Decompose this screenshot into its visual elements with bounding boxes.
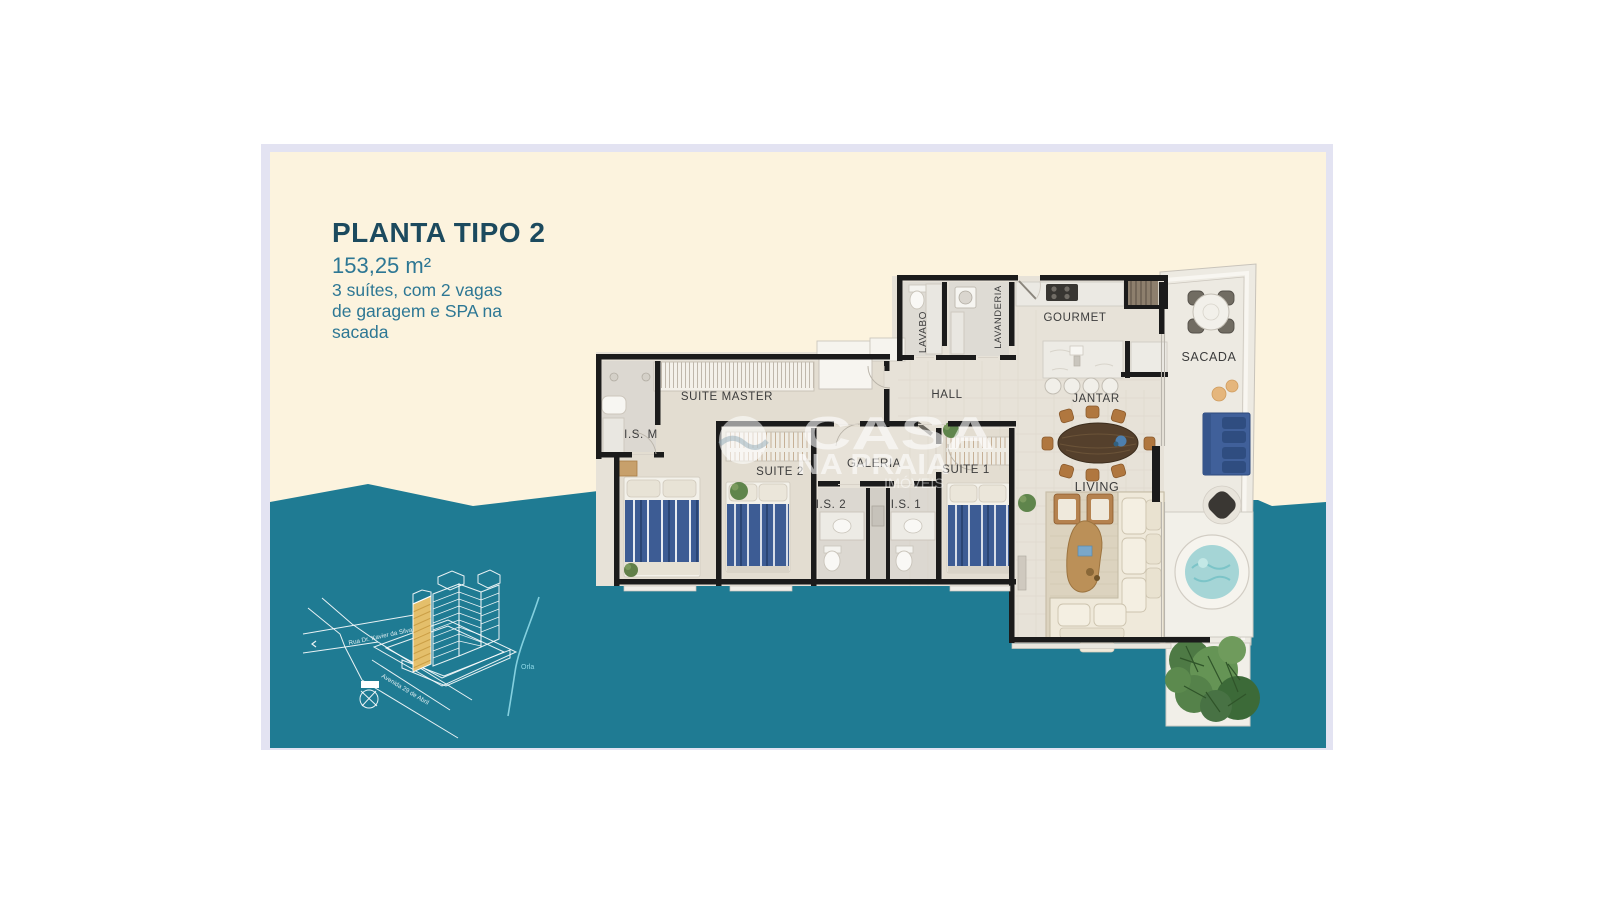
svg-text:3 suítes, com 2 vagas: 3 suítes, com 2 vagas [332,280,502,300]
svg-text:IMÓVEIS: IMÓVEIS [884,475,944,491]
svg-text:SACADA: SACADA [1181,350,1236,364]
svg-text:HALL: HALL [931,389,962,401]
svg-text:de garagem e SPA na: de garagem e SPA na [332,301,502,321]
svg-text:SUITE 1: SUITE 1 [942,464,990,476]
svg-text:Orla: Orla [521,664,534,671]
svg-text:sacada: sacada [332,322,389,342]
svg-text:GOURMET: GOURMET [1044,312,1107,324]
svg-text:LAVABO: LAVABO [918,311,929,353]
svg-text:LIVING: LIVING [1075,480,1120,494]
svg-text:I.S. 1: I.S. 1 [891,499,921,511]
svg-text:I.S. 2: I.S. 2 [816,499,846,511]
svg-text:LAVANDERIA: LAVANDERIA [993,285,1003,349]
svg-text:153,25 m²: 153,25 m² [332,253,431,278]
svg-text:JANTAR: JANTAR [1072,393,1119,405]
svg-text:PLANTA TIPO 2: PLANTA TIPO 2 [332,217,545,248]
svg-text:SUITE MASTER: SUITE MASTER [681,391,773,403]
svg-text:I.S. M: I.S. M [624,429,658,441]
